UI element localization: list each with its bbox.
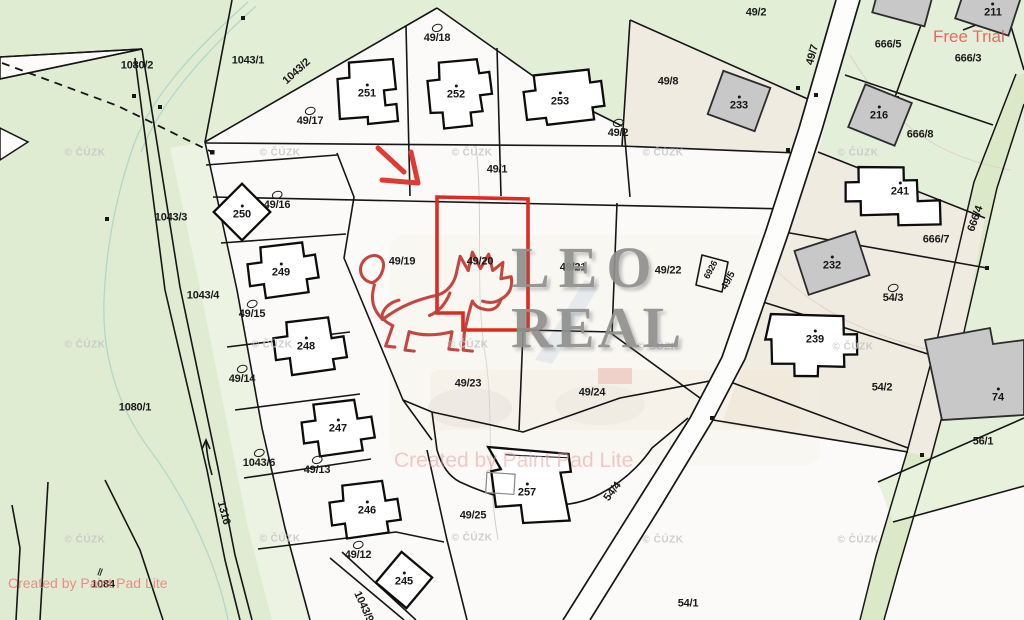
- parcel-number: 1080/1: [119, 402, 151, 413]
- cuzk-watermark: © ČÚZK: [838, 535, 879, 546]
- parcel-number: 666/5: [875, 39, 902, 50]
- parcel-label: 49/19: [389, 256, 416, 267]
- building-number: 249: [272, 262, 290, 278]
- parcel-label: 49/23: [455, 378, 482, 389]
- parcel-number: 49/2: [608, 128, 629, 139]
- parcel-number: 1043/3: [155, 212, 187, 223]
- free-trial-watermark: Free Trial: [933, 27, 1005, 47]
- cuzk-watermark: © ČÚZK: [65, 340, 106, 351]
- parcel-label: 666/3: [955, 53, 982, 64]
- cuzk-watermark: © ČÚZK: [833, 342, 874, 353]
- parcel-number: 666/7: [923, 234, 950, 245]
- leoreal-logo-line1: LEO: [511, 238, 684, 298]
- parcel-label: 49/18: [424, 24, 451, 44]
- building-number: 247: [329, 418, 347, 434]
- building-number: 239: [806, 329, 824, 345]
- parcel-label: 1080/1: [119, 402, 151, 413]
- parcel-number: 49/23: [455, 378, 482, 389]
- parcel-label: 666/5: [875, 39, 902, 50]
- parcel-label: 1043/4: [187, 290, 219, 301]
- parcel-label: 54/2: [872, 382, 893, 393]
- leoreal-logo-watermark: LEO REAL: [511, 238, 684, 358]
- parcel-number: 54/1: [678, 598, 699, 609]
- parcel-label: 49/14: [229, 365, 256, 385]
- paintpad-watermark-center: Created by Paint Pad Lite: [394, 449, 633, 473]
- building-number: 211: [984, 2, 1002, 18]
- building-number: 252: [447, 84, 465, 100]
- parcel-number: 49/1: [487, 164, 508, 175]
- leoreal-logo-line2: REAL: [511, 298, 684, 358]
- parcel-label: 49/8: [658, 76, 679, 87]
- parcel-label: 49/2: [746, 7, 767, 18]
- parcel-number: 49/15: [239, 309, 266, 320]
- parcel-label: 54/1: [678, 598, 699, 609]
- paintpad-watermark-corner: Created by Paint Pad Lite: [8, 575, 168, 591]
- cuzk-watermark: © ČÚZK: [452, 148, 493, 159]
- parcel-number: 49/13: [304, 465, 331, 476]
- parcel-number: 49/19: [389, 256, 416, 267]
- building-number: 257: [518, 482, 536, 498]
- cuzk-watermark: © ČÚZK: [452, 533, 493, 544]
- parcel-number: 49/16: [264, 200, 291, 211]
- parcel-number: 1080/2: [121, 60, 153, 71]
- building-number: 232: [823, 255, 841, 271]
- parcel-label: 49/16: [264, 191, 291, 211]
- cuzk-watermark: © ČÚZK: [252, 340, 293, 351]
- parcel-label: 54/3: [883, 284, 904, 304]
- parcel-label: 49/20: [467, 256, 494, 267]
- cadastral-map-screenshot: 1080/21043/11043/249/1749/1849/249/849/2…: [0, 0, 1024, 620]
- building-number: 246: [358, 500, 376, 515]
- cuzk-watermark: © ČÚZK: [65, 535, 106, 546]
- parcel-number: 54/3: [883, 293, 904, 304]
- parcel-label: 49/17: [297, 107, 324, 127]
- parcel-label: 49/1: [487, 164, 508, 175]
- parcel-number: 49/17: [297, 116, 324, 127]
- building-number: 253: [551, 91, 569, 107]
- building-number: 250: [233, 204, 251, 220]
- highlight-arrow-icon: [378, 148, 418, 183]
- parcel-label: 56/1: [973, 436, 994, 447]
- parcel-label: 1043/3: [155, 212, 187, 223]
- parcel-label: 666/8: [907, 129, 934, 140]
- parcel-label: 1080/2: [121, 60, 153, 71]
- cuzk-watermark: © ČÚZK: [65, 148, 106, 159]
- parcel-label: 49/15: [239, 300, 266, 320]
- parcel-number: 49/20: [467, 256, 494, 267]
- parcel-label: 49/25: [460, 510, 487, 521]
- building-number: 74: [992, 387, 1004, 403]
- parcel-label: 666/7: [923, 234, 950, 245]
- parcel-number: 49/14: [229, 374, 256, 385]
- building-number: 248: [297, 336, 315, 352]
- parcel-number: 49/18: [424, 33, 451, 44]
- parcel-label: 1043/6: [243, 449, 275, 469]
- parcel-label: 49/24: [579, 387, 606, 398]
- parcel-number: 1043/6: [243, 458, 275, 469]
- building-number: 245: [395, 571, 413, 587]
- parcel-number: 666/8: [907, 129, 934, 140]
- parcel-label: 49/12: [345, 541, 372, 561]
- parcel-number: 49/24: [579, 387, 606, 398]
- cuzk-watermark: © ČÚZK: [643, 535, 684, 546]
- cuzk-watermark: © ČÚZK: [838, 148, 879, 159]
- parcel-number: 49/12: [345, 550, 372, 561]
- parcel-label: 49/2: [608, 119, 629, 139]
- parcel-number: 1043/4: [187, 290, 219, 301]
- cuzk-watermark: © ČÚZK: [260, 534, 301, 545]
- parcel-number: 1043/1: [232, 55, 264, 66]
- parcel-number: 54/2: [872, 382, 893, 393]
- building-number: 233: [730, 95, 748, 111]
- parcel-label: 49/13: [304, 456, 331, 476]
- cuzk-watermark: © ČÚZK: [448, 340, 489, 351]
- parcel-number: 56/1: [973, 436, 994, 447]
- cuzk-watermark: © ČÚZK: [643, 148, 684, 159]
- parcel-number: 49/25: [460, 510, 487, 521]
- parcel-number: 49/2: [746, 7, 767, 18]
- building-number: 251: [358, 83, 376, 99]
- parcel-number: 49/8: [658, 76, 679, 87]
- parcel-label: 1043/1: [232, 55, 264, 66]
- building-number: 216: [870, 105, 888, 121]
- building-number: 241: [891, 181, 909, 197]
- parcel-number: 666/3: [955, 53, 982, 64]
- cuzk-watermark: © ČÚZK: [260, 148, 301, 159]
